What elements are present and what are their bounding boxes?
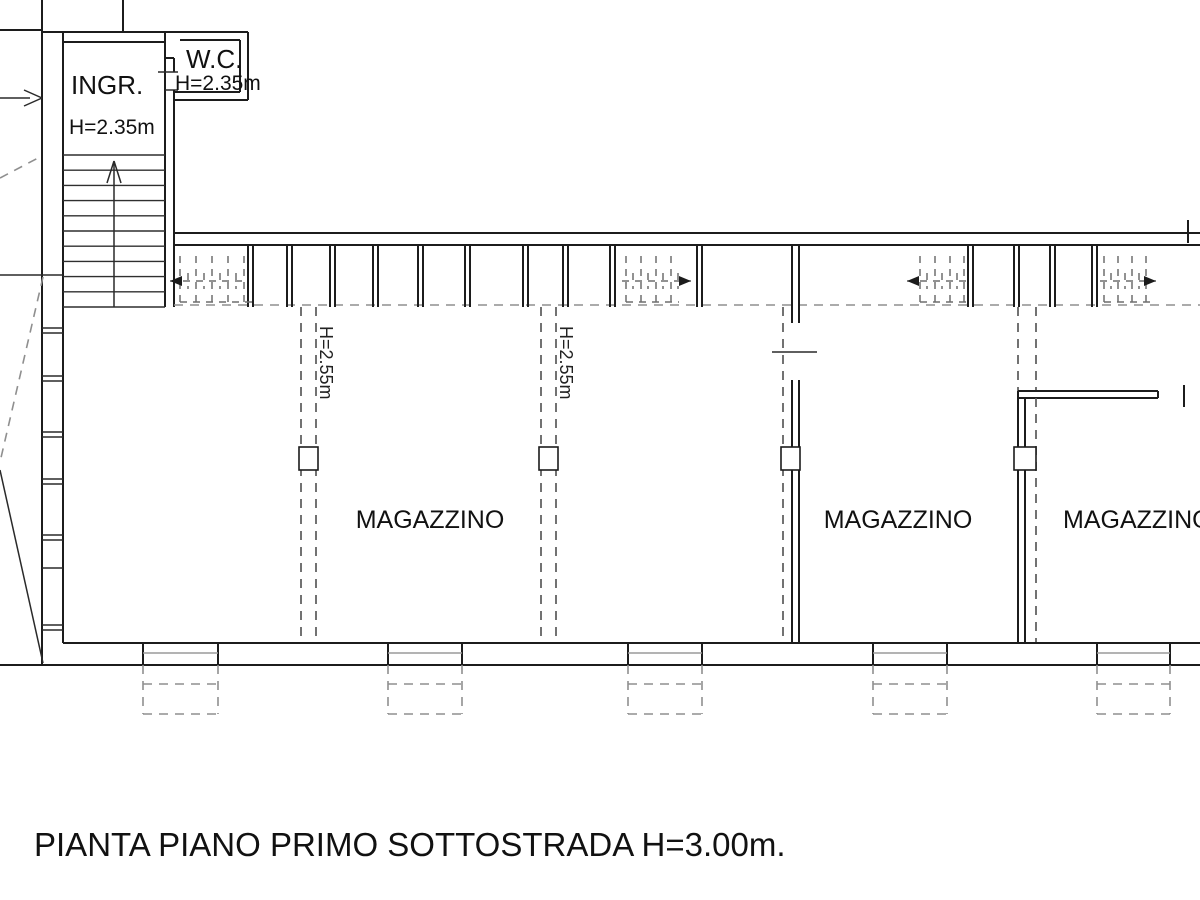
ramp-line — [0, 470, 43, 663]
room-label-magazzino-1: MAGAZZINO — [356, 506, 505, 534]
window-arrow — [907, 276, 919, 286]
floor-plan-page: INGR. H=2.35m W.C. H=2.35m MAGAZZINO MAG… — [0, 0, 1200, 900]
floor-plan-svg: INGR. H=2.35m W.C. H=2.35m MAGAZZINO MAG… — [0, 0, 1200, 900]
ramp-dashed-line — [0, 158, 38, 178]
beam-height-label-2: H=2.55m — [556, 326, 576, 400]
band-piers — [248, 246, 1097, 307]
window-arrow — [1144, 276, 1156, 286]
window-arrow — [679, 276, 691, 286]
height-label-ingresso: H=2.35m — [69, 116, 155, 139]
plan-caption: PIANTA PIANO PRIMO SOTTOSTRADA H=3.00m. — [34, 826, 786, 863]
bottom-wall — [0, 643, 1200, 714]
window-wells — [143, 643, 1170, 714]
partition-wall-2 — [1014, 307, 1184, 643]
stair-arrow — [107, 161, 114, 183]
partition-wall-1 — [772, 246, 817, 643]
window-arrow — [170, 276, 182, 286]
entrance-arrow — [0, 90, 42, 106]
room-label-magazzino-3: MAGAZZINO — [1063, 506, 1200, 534]
pillar — [539, 447, 558, 470]
room-label-wc: W.C. — [186, 44, 242, 74]
window-band — [170, 220, 1200, 307]
pillar — [299, 447, 318, 470]
pillar — [1014, 447, 1036, 470]
pillar — [781, 447, 800, 470]
height-label-wc: H=2.35m — [175, 72, 261, 95]
beam-partitions — [299, 307, 558, 643]
stair-arrow — [114, 161, 121, 183]
room-label-ingresso: INGR. — [71, 70, 143, 100]
room-label-magazzino-2: MAGAZZINO — [824, 506, 973, 534]
beam-height-label-1: H=2.55m — [316, 326, 336, 400]
ramp-dashed-line — [0, 277, 43, 462]
band-dashed-windows — [170, 256, 1156, 303]
